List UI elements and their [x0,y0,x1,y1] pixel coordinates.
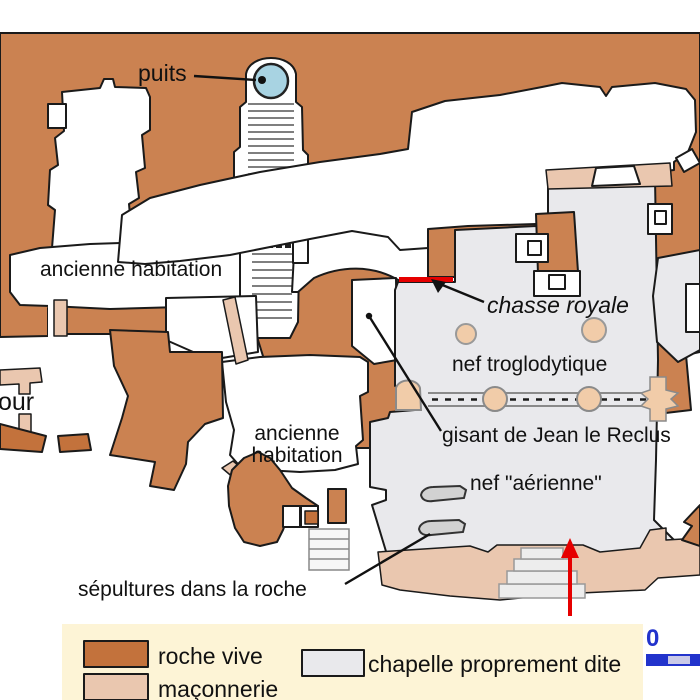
pillar-round-2 [582,318,606,342]
scale-zero-label: 0 [646,625,659,652]
pillar-round-1 [456,324,476,344]
wall-niche-1-socket [528,241,541,255]
floor-plan-page: puits ancienne habitation ancienne habit… [0,0,700,700]
column-1 [483,387,507,411]
entrance-step-1 [521,548,563,559]
nef-troglodytique-label: nef troglodytique [452,353,607,376]
puits-label: puits [138,60,187,86]
puits-pointer-dot [258,76,266,84]
legend-swatch-roche-vive [84,641,148,667]
chasse-royale-label: chasse royale [487,292,629,318]
legend-swatch-maconnerie [84,674,148,700]
nef-aerienne-label: nef "aérienne" [470,472,602,495]
door-frame-south-1 [283,506,300,527]
legend-swatch-chapelle [302,650,364,676]
chapel-floor-plan: puits ancienne habitation ancienne habit… [0,0,700,700]
masonry-stub-room1 [54,300,67,336]
entrance-step-3 [507,571,577,584]
tomb-1 [421,486,466,501]
altar [686,284,700,332]
rock-stub-west-of-chapel [328,489,346,523]
rock-fragment-small [58,434,91,452]
pillar-base-socket [549,275,565,289]
tour-label-clipped: our [0,388,34,416]
sepultures-label: sépultures dans la roche [78,578,307,601]
wall-niche-2-socket [655,211,666,224]
entrance-step-2 [514,559,570,571]
rock-block-south [305,511,318,524]
column-2 [577,387,601,411]
habitation-2-label-line2: habitation [251,444,342,467]
entrance-step-4 [499,584,585,598]
chasse-royale-marker [399,277,453,282]
tomb-2 [419,520,465,535]
legend-label-roche-vive: roche vive [158,643,263,669]
habitation-1-label: ancienne habitation [40,258,222,281]
cave-side-stub [48,104,66,128]
legend-label-maconnerie: maçonnerie [158,676,278,700]
legend-label-chapelle: chapelle proprement dite [368,651,621,677]
habitation-2-label-line1: ancienne [254,422,339,445]
scale-bar-light-segment [668,656,690,664]
gisant-label: gisant de Jean le Reclus [442,424,671,447]
north-door [592,166,640,186]
